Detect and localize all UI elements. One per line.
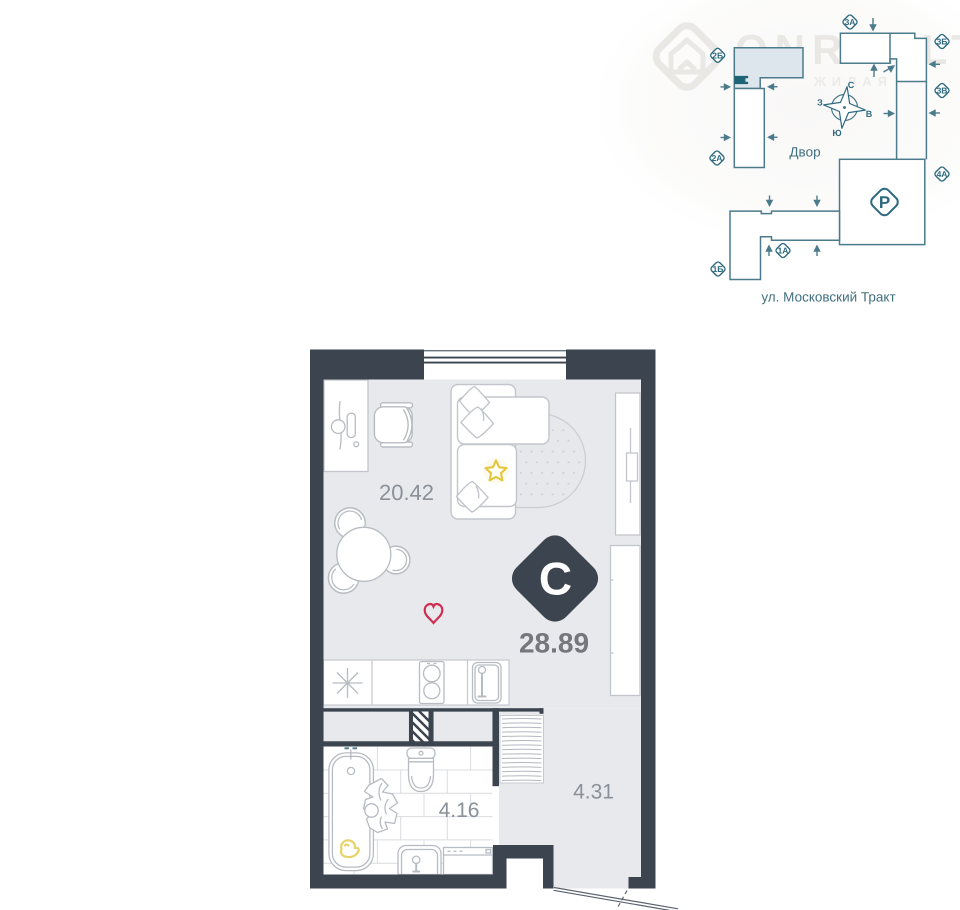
svg-text:2А: 2А	[712, 153, 723, 163]
svg-text:3Б: 3Б	[937, 37, 948, 47]
svg-text:1А: 1А	[778, 246, 789, 256]
svg-text:ул. Московский Тракт: ул. Московский Тракт	[761, 290, 895, 305]
svg-text:Двор: Двор	[789, 145, 820, 160]
svg-text:20.42: 20.42	[379, 480, 434, 505]
svg-text:28.89: 28.89	[519, 628, 589, 659]
svg-text:1Б: 1Б	[713, 264, 724, 274]
svg-text:4.16: 4.16	[439, 799, 480, 822]
svg-text:3А: 3А	[845, 17, 856, 27]
svg-text:З: З	[817, 98, 823, 108]
svg-text:Ю: Ю	[832, 128, 841, 138]
svg-text:3В: 3В	[937, 86, 948, 96]
svg-text:2Б: 2Б	[712, 50, 723, 60]
svg-text:В: В	[866, 109, 873, 119]
svg-text:4А: 4А	[937, 169, 948, 179]
svg-text:Р: Р	[879, 193, 890, 212]
svg-text:С: С	[848, 80, 855, 90]
svg-text:4.31: 4.31	[573, 781, 614, 804]
svg-text:С: С	[539, 553, 572, 605]
